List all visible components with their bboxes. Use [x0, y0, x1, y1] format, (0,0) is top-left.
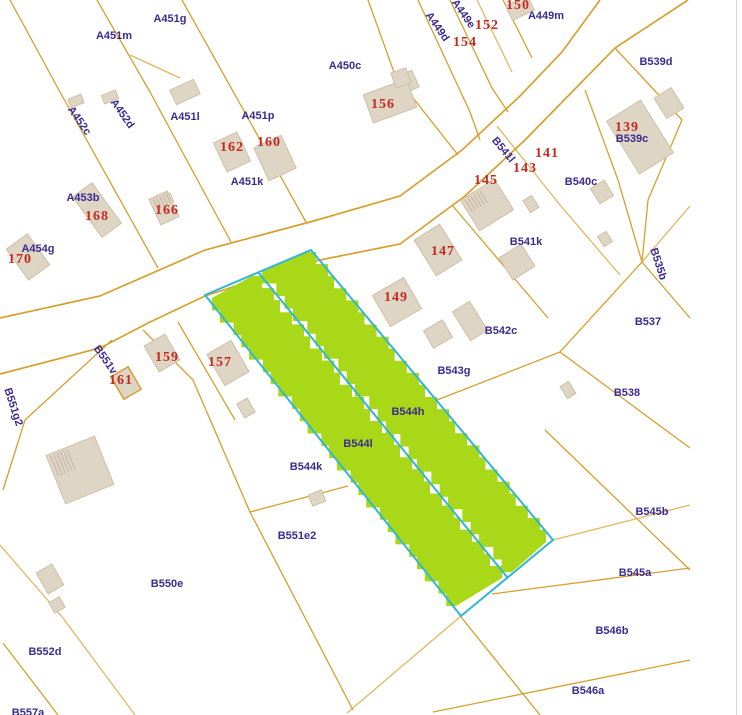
- house-number-label: 170: [8, 252, 32, 267]
- house-number-label: 156: [371, 97, 395, 112]
- building-footprint: [523, 195, 539, 212]
- parcel-boundary-line: [250, 486, 348, 512]
- building: [523, 195, 539, 212]
- parcel-label: B552d: [28, 646, 61, 658]
- building-footprint: [654, 88, 684, 119]
- parcel-label: B544k: [290, 461, 323, 473]
- parcel-label: B550e: [151, 578, 183, 590]
- building-footprint: [170, 79, 200, 104]
- parcel-boundary-line: [553, 505, 690, 540]
- house-number-label: 157: [208, 355, 232, 370]
- parcel-boundary-line: [560, 352, 690, 448]
- parcel-label: B538: [614, 387, 640, 399]
- parcel-label: B557a: [12, 707, 45, 715]
- cadastral-map-viewport: A451gA451mA449dA449eA449mA450cB539dB539c…: [0, 0, 742, 715]
- house-number-label: 154: [453, 35, 477, 50]
- building-footprint: [499, 244, 535, 280]
- parcel-label: B535b: [647, 246, 669, 281]
- building-footprint: [423, 320, 452, 348]
- building: [654, 88, 684, 119]
- parcel-label: B537: [635, 316, 661, 328]
- house-number-label: 141: [535, 146, 559, 161]
- building-footprint: [237, 398, 255, 418]
- parcel-label: B542c: [485, 325, 517, 337]
- parcel-boundary-line: [433, 660, 690, 712]
- house-number-label: 147: [431, 244, 455, 259]
- parcel-label: A452d: [108, 97, 137, 131]
- parcel-label: A451p: [241, 110, 274, 122]
- building-footprint: [453, 301, 488, 340]
- parcel-label: A449d: [423, 10, 452, 44]
- building-footprint: [36, 564, 64, 594]
- parcel-boundary-line: [452, 205, 548, 318]
- parcel-label: B545a: [619, 567, 652, 579]
- parcel-boundary-line: [461, 617, 540, 715]
- parcel-label: B541k: [510, 236, 543, 248]
- parcel-label: A451k: [231, 176, 264, 188]
- parcel-label: A453b: [66, 192, 99, 204]
- parcel-boundary-line: [130, 55, 180, 78]
- building: [453, 301, 488, 340]
- parcel-label: A451l: [170, 111, 199, 123]
- house-number-label: 145: [474, 173, 498, 188]
- parcel-boundary-line: [0, 545, 135, 715]
- building: [46, 436, 114, 504]
- house-number-label: 166: [155, 203, 179, 218]
- parcel-label: A452c: [65, 104, 93, 137]
- parcel-label: B544l: [343, 438, 372, 450]
- building-footprint: [560, 381, 576, 398]
- house-number-label: 143: [513, 161, 537, 176]
- parcel-label: A451m: [96, 30, 132, 42]
- cadastral-map-canvas[interactable]: A451gA451mA449dA449eA449mA450cB539dB539c…: [0, 0, 742, 715]
- parcel-label: B551e2: [278, 530, 317, 542]
- parcel-boundary-line: [492, 568, 690, 594]
- building-footprint: [598, 231, 613, 246]
- building: [49, 597, 65, 613]
- house-number-label: 162: [220, 140, 244, 155]
- parcel-label: B545b: [635, 506, 668, 518]
- building: [36, 564, 64, 594]
- building: [560, 381, 576, 398]
- parcel-label: B543g: [437, 365, 470, 377]
- building: [598, 231, 613, 246]
- parcel-label: B546a: [572, 685, 605, 697]
- house-number-label: 161: [109, 373, 133, 388]
- parcel-label: A451g: [153, 13, 186, 25]
- house-number-label: 168: [85, 209, 109, 224]
- building-footprint: [49, 597, 65, 613]
- parcel-label: B546b: [595, 625, 628, 637]
- parcel-boundary-line: [545, 430, 690, 570]
- parcel-label: A450c: [329, 60, 361, 72]
- house-number-label: 160: [257, 135, 281, 150]
- house-number-label: 139: [615, 120, 639, 135]
- building: [170, 79, 200, 104]
- house-number-label: 149: [384, 290, 408, 305]
- parcel-label: B539d: [639, 56, 672, 68]
- house-number-label: 150: [506, 0, 530, 13]
- building: [237, 398, 255, 418]
- parcel-label: B551g2: [1, 387, 25, 428]
- parcel-label: A449m: [528, 10, 564, 22]
- house-number-label: 152: [475, 18, 499, 33]
- parcel-label: B544h: [391, 406, 424, 418]
- parcel-label: B540c: [565, 176, 597, 188]
- building: [499, 244, 535, 280]
- building: [423, 320, 452, 348]
- house-number-label: 159: [155, 350, 179, 365]
